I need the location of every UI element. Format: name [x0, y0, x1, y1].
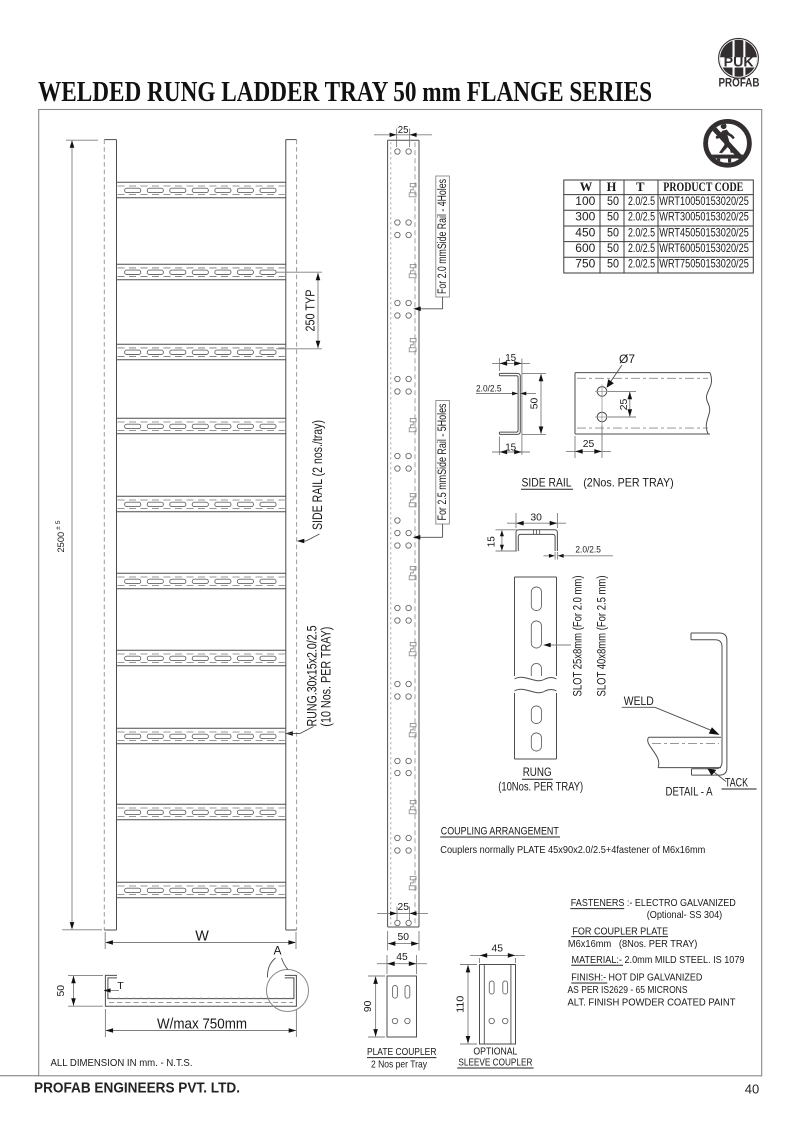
svg-text:2.0/2.5: 2.0/2.5: [628, 194, 655, 208]
svg-text:450: 450: [575, 225, 595, 239]
svg-text:40: 40: [745, 1082, 759, 1097]
svg-text:2.0/2.5: 2.0/2.5: [628, 210, 655, 224]
svg-text:FOR COUPLER PLATE: FOR COUPLER PLATE: [572, 925, 668, 937]
svg-text:2.0/2.5: 2.0/2.5: [476, 383, 502, 393]
svg-text:90: 90: [363, 1000, 374, 1012]
svg-text:100: 100: [575, 194, 595, 208]
svg-text:For 2.5 mmSide Rail - 5Holes: For 2.5 mmSide Rail - 5Holes: [435, 403, 449, 520]
svg-text:ALL DIMENSION IN mm. - N.T.S.: ALL DIMENSION IN mm. - N.T.S.: [51, 1058, 193, 1069]
svg-text:T: T: [636, 180, 645, 194]
svg-text:RUNG.30x15x2.0/2.5: RUNG.30x15x2.0/2.5: [305, 625, 320, 726]
svg-text:SIDE RAIL: SIDE RAIL: [522, 476, 572, 489]
svg-text:WRT10050153020/25: WRT10050153020/25: [659, 194, 749, 208]
svg-text:15: 15: [505, 353, 516, 364]
svg-text:110: 110: [455, 995, 466, 1012]
svg-text:50: 50: [607, 194, 619, 208]
svg-text:50: 50: [607, 257, 619, 271]
svg-text:2.0/2.5: 2.0/2.5: [628, 241, 655, 255]
svg-text:45: 45: [396, 952, 408, 963]
svg-text:50: 50: [530, 397, 541, 409]
svg-text:(10Nos. PER TRAY): (10Nos. PER TRAY): [498, 782, 583, 794]
svg-text:25: 25: [398, 125, 409, 136]
svg-text:750: 750: [575, 257, 595, 271]
svg-text:COUPLING ARRANGEMENT: COUPLING ARRANGEMENT: [441, 826, 559, 838]
svg-text:50: 50: [398, 932, 410, 943]
svg-text:Couplers normally PLATE 45x90x: Couplers normally PLATE 45x90x2.0/2.5+4f…: [440, 845, 705, 856]
svg-text:2.0/2.5: 2.0/2.5: [628, 257, 655, 271]
svg-text:FASTENERS :- ELECTRO GALVANIZE: FASTENERS :- ELECTRO GALVANIZED: [571, 897, 736, 909]
svg-text:For 2.0 mmSide Rail - 4Holes: For 2.0 mmSide Rail - 4Holes: [435, 179, 449, 294]
svg-text:WELDED RUNG LADDER TRAY 50 m: WELDED RUNG LADDER TRAY 50 mm FLANGE SER…: [38, 76, 652, 108]
svg-text:25: 25: [619, 398, 630, 410]
svg-text:PROFAB: PROFAB: [719, 78, 760, 90]
svg-text:SLOT 40x8mm (For 2.5 mm): SLOT 40x8mm (For 2.5 mm): [595, 576, 609, 697]
svg-text:WELD: WELD: [624, 696, 654, 708]
svg-text:25: 25: [583, 439, 595, 450]
svg-text:15: 15: [505, 442, 516, 453]
svg-text:50: 50: [56, 985, 67, 997]
svg-text:45: 45: [492, 943, 504, 954]
svg-text:MATERIAL:- 2.0mm MILD STEEL. I: MATERIAL:- 2.0mm MILD STEEL. IS 1079: [572, 954, 745, 966]
svg-text:50: 50: [607, 241, 619, 255]
svg-text:2.0/2.5: 2.0/2.5: [575, 544, 601, 554]
svg-text:50: 50: [607, 210, 619, 224]
svg-text:WRT45050153020/25: WRT45050153020/25: [659, 225, 749, 239]
svg-text:30: 30: [530, 512, 542, 523]
svg-text:W: W: [580, 180, 593, 194]
svg-text:PLATE COUPLER: PLATE COUPLER: [367, 1046, 437, 1058]
svg-text:SIDE RAIL (2 nos./tray): SIDE RAIL (2 nos./tray): [310, 420, 325, 530]
svg-text:250 TYP: 250 TYP: [302, 290, 317, 332]
svg-text:PROFAB ENGINEERS PVT. LTD.: PROFAB ENGINEERS PVT. LTD.: [34, 1080, 240, 1096]
svg-text:RUNG: RUNG: [523, 767, 552, 779]
svg-text:DETAIL - A: DETAIL - A: [666, 787, 713, 799]
svg-text:WRT30050153020/25: WRT30050153020/25: [659, 210, 749, 224]
svg-text:300: 300: [575, 210, 595, 224]
svg-text:15: 15: [486, 536, 497, 547]
svg-text:A: A: [273, 944, 281, 958]
svg-text:ALT. FINISH POWDER COATED PAIN: ALT. FINISH POWDER COATED PAINT: [568, 996, 737, 1008]
svg-text:FINISH:- HOT DIP GALVANIZED: FINISH:- HOT DIP GALVANIZED: [571, 972, 702, 984]
svg-text:H: H: [607, 180, 617, 194]
svg-text:25: 25: [398, 902, 410, 913]
svg-text:50: 50: [607, 225, 619, 239]
svg-text:(10 Nos. PER TRAY): (10 Nos. PER TRAY): [319, 627, 334, 727]
svg-text:WRT60050153020/25: WRT60050153020/25: [659, 241, 749, 255]
svg-text:M6x16mm (8Nos. PER TRAY): M6x16mm (8Nos. PER TRAY): [568, 938, 698, 950]
svg-text:PUK: PUK: [724, 55, 754, 70]
svg-text:W/max 750mm: W/max 750mm: [157, 1015, 247, 1032]
svg-text:WRT75050153020/25: WRT75050153020/25: [659, 257, 749, 271]
svg-text:TACK: TACK: [725, 778, 748, 790]
svg-text:2.0/2.5: 2.0/2.5: [628, 225, 655, 239]
svg-text:PRODUCT CODE: PRODUCT CODE: [663, 180, 743, 194]
svg-text:2 Nos per Tray: 2 Nos per Tray: [371, 1058, 428, 1070]
svg-text:Ø7: Ø7: [619, 354, 635, 366]
svg-text:W: W: [195, 929, 209, 945]
svg-text:(2Nos. PER TRAY): (2Nos. PER TRAY): [583, 476, 674, 489]
svg-text:600: 600: [575, 241, 595, 255]
svg-text:(Optional- SS 304): (Optional- SS 304): [647, 909, 723, 921]
svg-text:AS PER IS2629 - 65 MICRONS: AS PER IS2629 - 65 MICRONS: [568, 984, 688, 996]
svg-text:SLOT 25x8mm (For 2.0 mm): SLOT 25x8mm (For 2.0 mm): [571, 576, 585, 697]
svg-text:SLEEVE COUPLER: SLEEVE COUPLER: [458, 1057, 532, 1069]
